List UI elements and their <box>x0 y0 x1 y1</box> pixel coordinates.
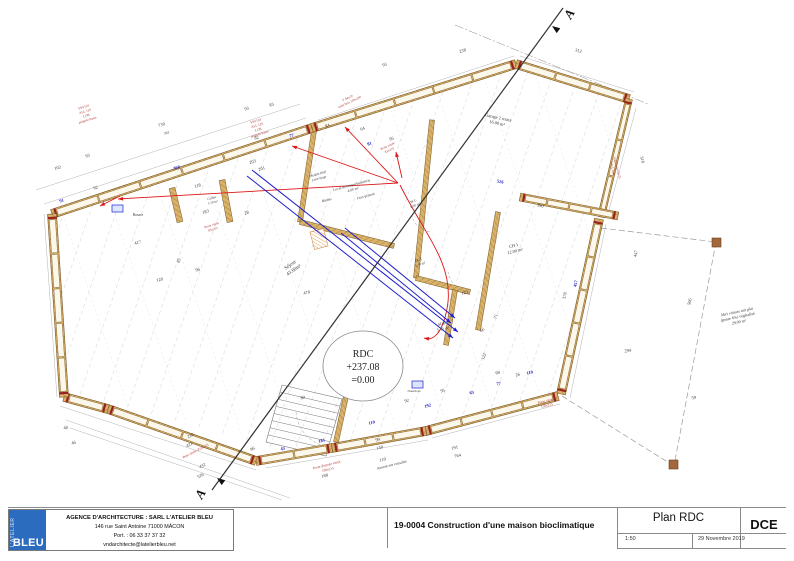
section-line-AA: AA <box>191 6 578 502</box>
project-title: 19-0004 Construction d'une maison biocli… <box>394 520 624 530</box>
agency-name: AGENCE D'ARCHITECTURE : SARL L'ATELIER B… <box>46 514 233 523</box>
agency-email: vndarchitecte@latelierbleu.net <box>46 541 233 550</box>
carport-post <box>669 460 678 469</box>
agency-info: AGENCE D'ARCHITECTURE : SARL L'ATELIER B… <box>46 510 233 550</box>
wall-band <box>51 124 314 219</box>
fixture-box <box>112 205 123 212</box>
carport-post <box>712 238 721 247</box>
room-label: Faux-plafond <box>356 192 375 201</box>
titleblock-bottom-rule <box>617 548 786 549</box>
room-label: Bûches <box>321 197 332 204</box>
dimension-lines <box>36 25 648 500</box>
dimension-label: 81 <box>367 140 374 146</box>
level-marker-text: RDC <box>353 349 374 360</box>
dimension-label: 432 <box>198 462 206 469</box>
dimension-label: 118 <box>194 182 202 189</box>
drawing-title: Plan RDC <box>617 512 740 524</box>
titleblock-separator <box>387 507 388 548</box>
dimension-label: 506 <box>686 297 692 305</box>
wall-band <box>63 393 109 414</box>
dimension-label: 140 <box>376 444 384 451</box>
drawing-date: 29 Novembre 2019 <box>698 536 745 542</box>
dimension-label: 93 <box>244 105 250 111</box>
dimension-label: 526 <box>496 178 504 184</box>
annotation-labels: Séjour43.60m²Garage 2 roues16.00 m²CH 11… <box>74 91 756 475</box>
agency-address: 146 rue Saint Antoine 71000 MÂCON <box>46 523 233 532</box>
agency-phone: Port. : 06 33 37 37 32 <box>46 532 233 541</box>
dimension-label: 120 <box>156 276 165 283</box>
dimension-label: 28 <box>244 209 250 215</box>
dimension-label: 83 <box>269 101 275 107</box>
agency-box: L'ATELIER BLEU AGENCE D'ARCHITECTURE : S… <box>8 509 234 551</box>
floor-plan-canvas: RDC+237.08=0.00AA73036193838292102933607… <box>0 0 794 561</box>
dimension-label: 59 <box>691 395 697 401</box>
level-marker-text: =0.00 <box>351 375 374 386</box>
dimension-label: 46 <box>71 439 77 445</box>
atelier-bleu-logo: L'ATELIER BLEU <box>9 510 46 550</box>
duct-block <box>310 228 328 249</box>
dimension-label: 764 <box>454 452 462 459</box>
wall-band <box>255 444 333 466</box>
dimension-label: 192 <box>424 402 432 409</box>
dimension-label: 378 <box>561 291 567 299</box>
plumbing-lines <box>112 170 459 388</box>
dimension-label: 96 <box>195 266 201 272</box>
drawing-scale: 1:50 <box>625 536 636 542</box>
dimension-label: 95 <box>389 135 396 141</box>
dimension-label: 318 <box>639 156 646 165</box>
dimension-label: 183 <box>202 208 211 215</box>
dimension-label: 238 <box>459 47 468 54</box>
room-label: Rosace <box>133 213 144 217</box>
logo-main-text: BLEU <box>13 537 44 549</box>
dimension-label: 110 <box>526 369 534 376</box>
dimension-label: 191 <box>451 444 459 450</box>
architectural-drawing-page: RDC+237.08=0.00AA73036193838292102933607… <box>0 0 794 561</box>
dimension-label: 417 <box>134 239 143 246</box>
dimension-label: 201 <box>258 165 266 172</box>
dimension-label: 110 <box>379 456 387 463</box>
dimension-label: 64 <box>360 125 367 131</box>
dimension-label: 91 <box>59 197 65 203</box>
dimension-label: 203 <box>249 158 258 165</box>
titleblock-top-rule <box>8 507 786 508</box>
wall-band <box>425 392 559 436</box>
dimension-label: 390 <box>536 202 544 208</box>
dimension-label: 188 <box>321 472 329 479</box>
dimension-label: 730 <box>158 121 167 128</box>
dimension-label: 48 <box>63 424 69 430</box>
dimension-label: 102 <box>54 164 62 171</box>
dimension-label: 63 <box>469 389 475 395</box>
dimension-label: 85 <box>175 257 181 264</box>
dimension-label: 92 <box>93 185 99 191</box>
room-label: Nourrices <box>408 389 422 393</box>
dimension-label: 110 <box>368 419 376 426</box>
dimension-label: 361 <box>163 130 170 136</box>
dimension-label: 26 <box>515 371 521 377</box>
dimension-label: 77 <box>496 380 502 386</box>
dimension-label: 68 <box>495 369 501 375</box>
dimension-label: 478 <box>303 289 312 296</box>
wall-band <box>311 60 518 133</box>
level-marker: RDC+237.08=0.00 <box>323 331 403 401</box>
dimension-label: 447 <box>632 249 638 257</box>
titleblock-mid-rule <box>617 533 786 534</box>
level-marker-text: +237.08 <box>346 362 379 373</box>
dimension-label: 526 <box>196 472 205 480</box>
document-phase: DCE <box>740 517 788 532</box>
heating-distribution-lines <box>99 126 448 341</box>
dimension-label: 96 <box>249 445 256 452</box>
interior-walls <box>169 120 500 443</box>
titleblock-separator <box>692 533 693 548</box>
fixture-box <box>412 381 423 388</box>
section-label: A <box>560 6 578 22</box>
dimension-label: 71 <box>492 314 498 320</box>
dimension-label: 294 <box>624 347 632 353</box>
wall-band <box>515 60 631 104</box>
dimension-label: 80 <box>300 394 306 400</box>
dimension-label: 312 <box>574 47 582 54</box>
dimension-label: 457 <box>572 279 578 287</box>
dimension-label: 93 <box>85 152 91 158</box>
section-label: A <box>191 486 209 502</box>
dimension-label: 122 <box>480 352 487 360</box>
wall-band <box>557 218 604 395</box>
dimension-label: 93 <box>382 61 388 67</box>
dimension-label: 92 <box>404 398 410 404</box>
